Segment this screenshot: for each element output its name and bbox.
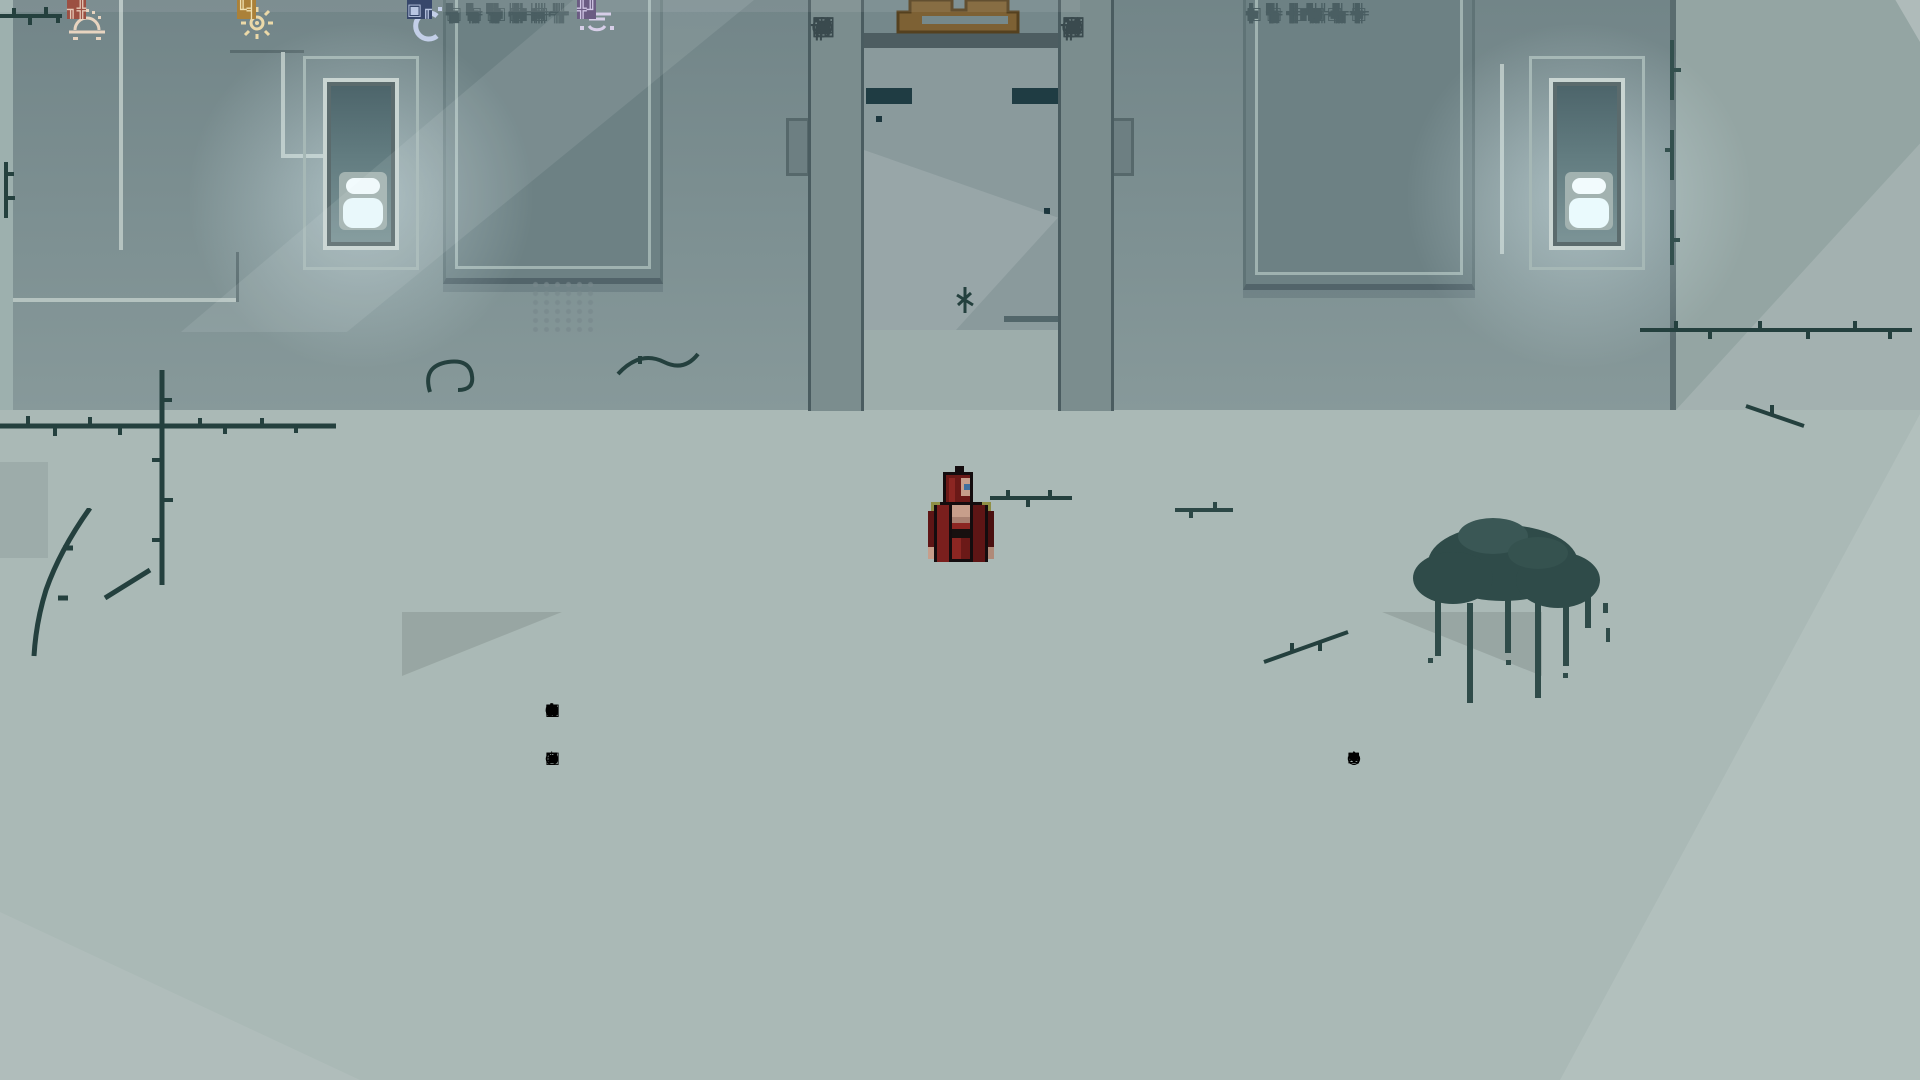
statue-plaque: ╙╡	[237, 0, 256, 19]
statue-plaque: ▣╓	[407, 0, 432, 19]
wall-lamp-right	[1549, 78, 1625, 250]
door-header	[866, 88, 912, 104]
door-reflection	[1026, 126, 1056, 152]
crack-mark	[1175, 498, 1247, 524]
lamp-light-icon	[1572, 178, 1606, 194]
temple-wall: ╬ ⌐ ▣ ╋ ┤ ╦╒ ▚ ╪ ╠ ◧ ║╠ ╫ ┼ ⌐ ╛ ╬▣ ╦ ╋ ◨…	[0, 0, 1920, 410]
crack-mark	[954, 286, 976, 316]
tablet-shadow	[1243, 290, 1475, 298]
rubble	[530, 280, 594, 332]
crack-mark	[1742, 400, 1814, 434]
ornament-band-left: ◌◎▣✕◌⊞✳◎⊠	[545, 748, 593, 1080]
player-character[interactable]	[922, 466, 1000, 562]
panel-line	[281, 52, 285, 158]
gate-threshold	[864, 330, 1058, 410]
tablet-frame	[1255, 0, 1463, 275]
wall-niche	[786, 118, 810, 176]
ornament-tile: ⊠	[545, 748, 558, 767]
light-shaft	[0, 840, 360, 1080]
game-viewport[interactable]: ╬ ⌐ ▣ ╋ ┤ ╦╒ ▚ ╪ ╠ ◧ ║╠ ╫ ┼ ⌐ ╛ ╬▣ ╦ ╋ ◨…	[0, 0, 1920, 1080]
crack-mark	[1640, 312, 1920, 350]
rune-row: ╦ ╫ ║ ╋ ⌐ ▣	[1246, 2, 1369, 27]
crack-mark	[1262, 618, 1360, 672]
rune-tablet-right: ╫ ╬ ╋ ▣ ╠ ┤◧ ╒ ╪ ╦ ▚ ║⌐ ╠ ╬ ┼ ╛ ╋╋ ▣ ◨ ╠…	[1243, 0, 1475, 290]
ornament-band-top: ◌✸⊞✳◎✕◌⊠✚⊗◉⊡❖✕▣▦✳◌⊞✸◎⊠✱◍✳	[545, 700, 1395, 748]
crack-mark	[1662, 40, 1686, 270]
door-header	[1012, 88, 1058, 104]
ornament-tile: ✳	[545, 700, 558, 719]
gate-pillar-left: ▣⊠╥◌▤▦▣✕◎	[808, 0, 864, 411]
vine-plant	[1398, 508, 1613, 708]
crack-mark	[990, 484, 1082, 512]
panel-line	[119, 0, 123, 250]
crack-mark	[28, 508, 120, 664]
crack-line	[1004, 316, 1058, 322]
lamp-light-icon	[1569, 198, 1609, 228]
crack-mark	[610, 342, 706, 382]
ornament-band-right: ❖◌✳⊡◎✕⊞◌✸	[1347, 748, 1395, 1080]
block-joint	[1023, 0, 1027, 404]
ornament-tile: ✸	[1347, 748, 1360, 767]
gate-pillar-right: ◎✕▣▦▤◌╥⊠▣	[1058, 0, 1114, 411]
panel-line	[1500, 64, 1504, 254]
corner-shadow	[402, 612, 562, 676]
block-highlight	[0, 0, 1080, 12]
block-joint	[963, 154, 1080, 158]
crack-mark	[0, 160, 22, 224]
crack-mark	[420, 348, 484, 402]
panel-line	[230, 50, 304, 53]
tile-line	[912, 120, 1012, 123]
door-dot	[876, 116, 882, 122]
block-joint	[56, 0, 60, 404]
light-shaft	[1560, 414, 1920, 1080]
panel-line	[0, 298, 238, 302]
block-joint	[0, 144, 113, 148]
crack-mark	[0, 0, 90, 30]
